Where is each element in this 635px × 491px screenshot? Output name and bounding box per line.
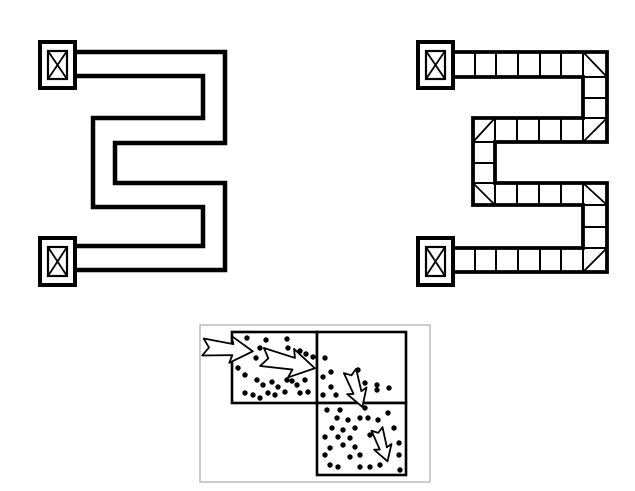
agent-dot [327,445,332,450]
agent-dot [257,345,262,350]
agent-dot [357,464,362,469]
agent-dot [310,354,315,359]
corner-diagonal [583,118,607,142]
agent-dot [253,355,258,360]
agent-dot [352,425,357,430]
agent-dot [257,395,262,400]
agent-dot [334,415,339,420]
agent-dot [347,454,352,459]
agent-dot [275,384,280,389]
start-box [418,42,453,88]
agent-dot [386,385,391,390]
corridor-inner-wall [453,77,583,248]
agent-dot [282,389,287,394]
agent-dot [367,464,372,469]
agent-dot [322,434,327,439]
agent-dot [396,440,401,445]
agent-dot [322,452,327,457]
agent-dot [254,377,259,382]
agent-dot [374,382,379,387]
agent-dot [305,389,310,394]
agent-dot [362,380,367,385]
goal-box [40,238,75,285]
agent-dot [352,444,357,449]
agent-dot [284,377,289,382]
agent-dot [272,392,277,397]
agent-dot [294,382,299,387]
agent-dot [260,382,265,387]
agent-dot [320,392,325,397]
agent-dot [263,337,268,342]
agent-dot [284,336,289,341]
agent-dot [391,425,396,430]
figure-page [0,0,635,491]
agent-dot [289,378,294,383]
figure-corridor-continuous [40,42,225,285]
start-box [40,42,75,88]
agent-dot [235,365,240,370]
agent-dot [335,434,340,439]
agent-dot [347,435,352,440]
agent-dot [250,392,255,397]
agent-dot [357,415,362,420]
agent-dot [385,410,390,415]
agent-dot [303,351,308,356]
agent-dot [377,462,382,467]
agent-dot [265,390,270,395]
corner-diagonal [473,183,495,205]
agent-dot [335,464,340,469]
agent-dot [285,345,290,350]
agent-dot [269,379,274,384]
corner-diagonal [473,118,495,142]
agent-dot [297,390,302,395]
agent-dot [397,467,402,472]
corridor-inner-wall [75,76,203,246]
agent-dot [328,369,333,374]
agent-dot [244,335,249,340]
figure-corridor-discretized [418,42,607,285]
corner-diagonal [583,248,607,272]
agent-dot [333,392,338,397]
agent-dot [340,427,345,432]
corner-diagonal [583,52,607,77]
agent-dot [375,417,380,422]
goal-box [418,238,453,285]
agent-dot [396,452,401,457]
agent-dot [302,377,307,382]
agent-dot [345,417,350,422]
agent-dot [337,407,342,412]
agent-dot [320,374,325,379]
agent-dot [242,372,247,377]
agent-dot [357,452,362,457]
agent-dot [322,355,327,360]
agent-dot [329,425,334,430]
figure-cell-flow [200,325,430,482]
agent-dot [327,462,332,467]
corner-diagonal [583,183,607,205]
agent-dot [328,384,333,389]
agent-dot [340,442,345,447]
agent-dot [374,387,379,392]
agent-dot [365,415,370,420]
agent-dot [242,390,247,395]
agent-dot [324,407,329,412]
corridor-figures-canvas [0,0,635,491]
